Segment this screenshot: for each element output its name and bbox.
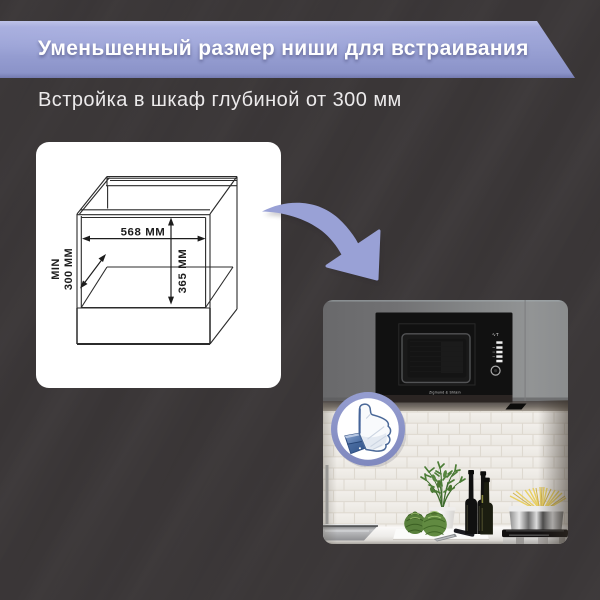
- svg-text:∿T: ∿T: [492, 332, 499, 337]
- svg-text:MIN300 ММ: MIN300 ММ: [50, 248, 75, 290]
- svg-text:568 ММ: 568 ММ: [121, 227, 166, 239]
- svg-text:365 ММ: 365 ММ: [177, 249, 189, 294]
- svg-text:Zigmund & Shtain: Zigmund & Shtain: [429, 390, 461, 394]
